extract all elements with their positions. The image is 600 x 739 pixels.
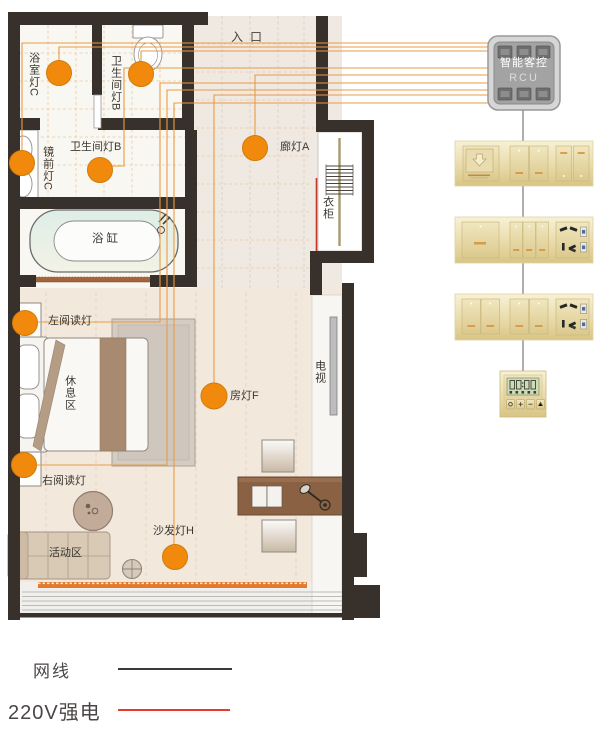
light-bathroom-c (47, 61, 72, 86)
desk-chair (262, 440, 294, 472)
light-room-f (201, 383, 227, 409)
label-corridor-light-a: 廊灯A (280, 141, 309, 154)
wardrobe (318, 132, 362, 251)
label-bathroom-light-c: 浴室灯C (27, 52, 40, 97)
label-wardrobe: 衣柜 (321, 196, 334, 220)
panel-switches (455, 294, 593, 340)
label-bathtub: 浴缸 (92, 233, 121, 246)
tv (330, 317, 337, 415)
legend-power-line (118, 709, 230, 711)
card-key-module (463, 146, 499, 181)
rcu-title: 智能客控 (488, 54, 560, 70)
smart-room-wiring-diagram: 浴室灯C 卫生间灯B 镜前灯C 卫生间灯B 入口 廊灯A 衣柜 浴缸 左阅读灯 … (0, 0, 600, 739)
light-toilet-b (88, 158, 113, 183)
light-toilet-b-upper (129, 62, 154, 87)
panel-card-power (455, 141, 593, 186)
bed (10, 337, 148, 452)
label-toilet-light-b: 卫生间灯B (70, 141, 121, 154)
door-leaf (94, 95, 101, 128)
light-corridor-a (243, 136, 268, 161)
label-activity-area: 活动区 (49, 547, 82, 560)
label-tv: 电视 (313, 360, 326, 384)
label-entry: 入口 (231, 31, 269, 45)
desk-chair (262, 520, 296, 552)
label-sofa-light-h: 沙发灯H (153, 525, 194, 538)
tv-wall-strip (312, 295, 342, 615)
label-right-reading-light: 右阅读灯 (42, 475, 86, 488)
open-book (252, 486, 267, 507)
label-room-light-f: 房灯F (230, 390, 259, 403)
label-mirror-light-c: 镜前灯C (41, 146, 54, 191)
single-switch-module (462, 222, 499, 258)
bed-runner (100, 338, 126, 451)
light-sofa-h (163, 545, 188, 570)
hangers (326, 165, 353, 196)
stool (123, 560, 142, 579)
legend-network-label: 网线 (33, 657, 71, 682)
panel-switch-socket (455, 217, 593, 263)
legend-network-line (118, 668, 232, 670)
curtain (38, 582, 307, 588)
pillow (17, 345, 39, 389)
thermostat-lcd (507, 378, 539, 395)
light-mirror-c (10, 151, 35, 176)
legend-power-label: 220V强电 (8, 696, 101, 725)
light-left-reading (13, 311, 38, 336)
label-left-reading-light: 左阅读灯 (48, 315, 92, 328)
round-table (74, 492, 113, 531)
rcu-subtitle: RCU (488, 72, 560, 84)
label-toilet-light-b-upper: 卫生间灯B (109, 55, 122, 111)
light-right-reading (12, 453, 37, 478)
glass-slider (28, 277, 152, 282)
thermostat (500, 371, 546, 417)
tub-faucet (158, 227, 165, 234)
pillow (17, 394, 39, 438)
label-rest-area: 休息区 (63, 375, 76, 411)
